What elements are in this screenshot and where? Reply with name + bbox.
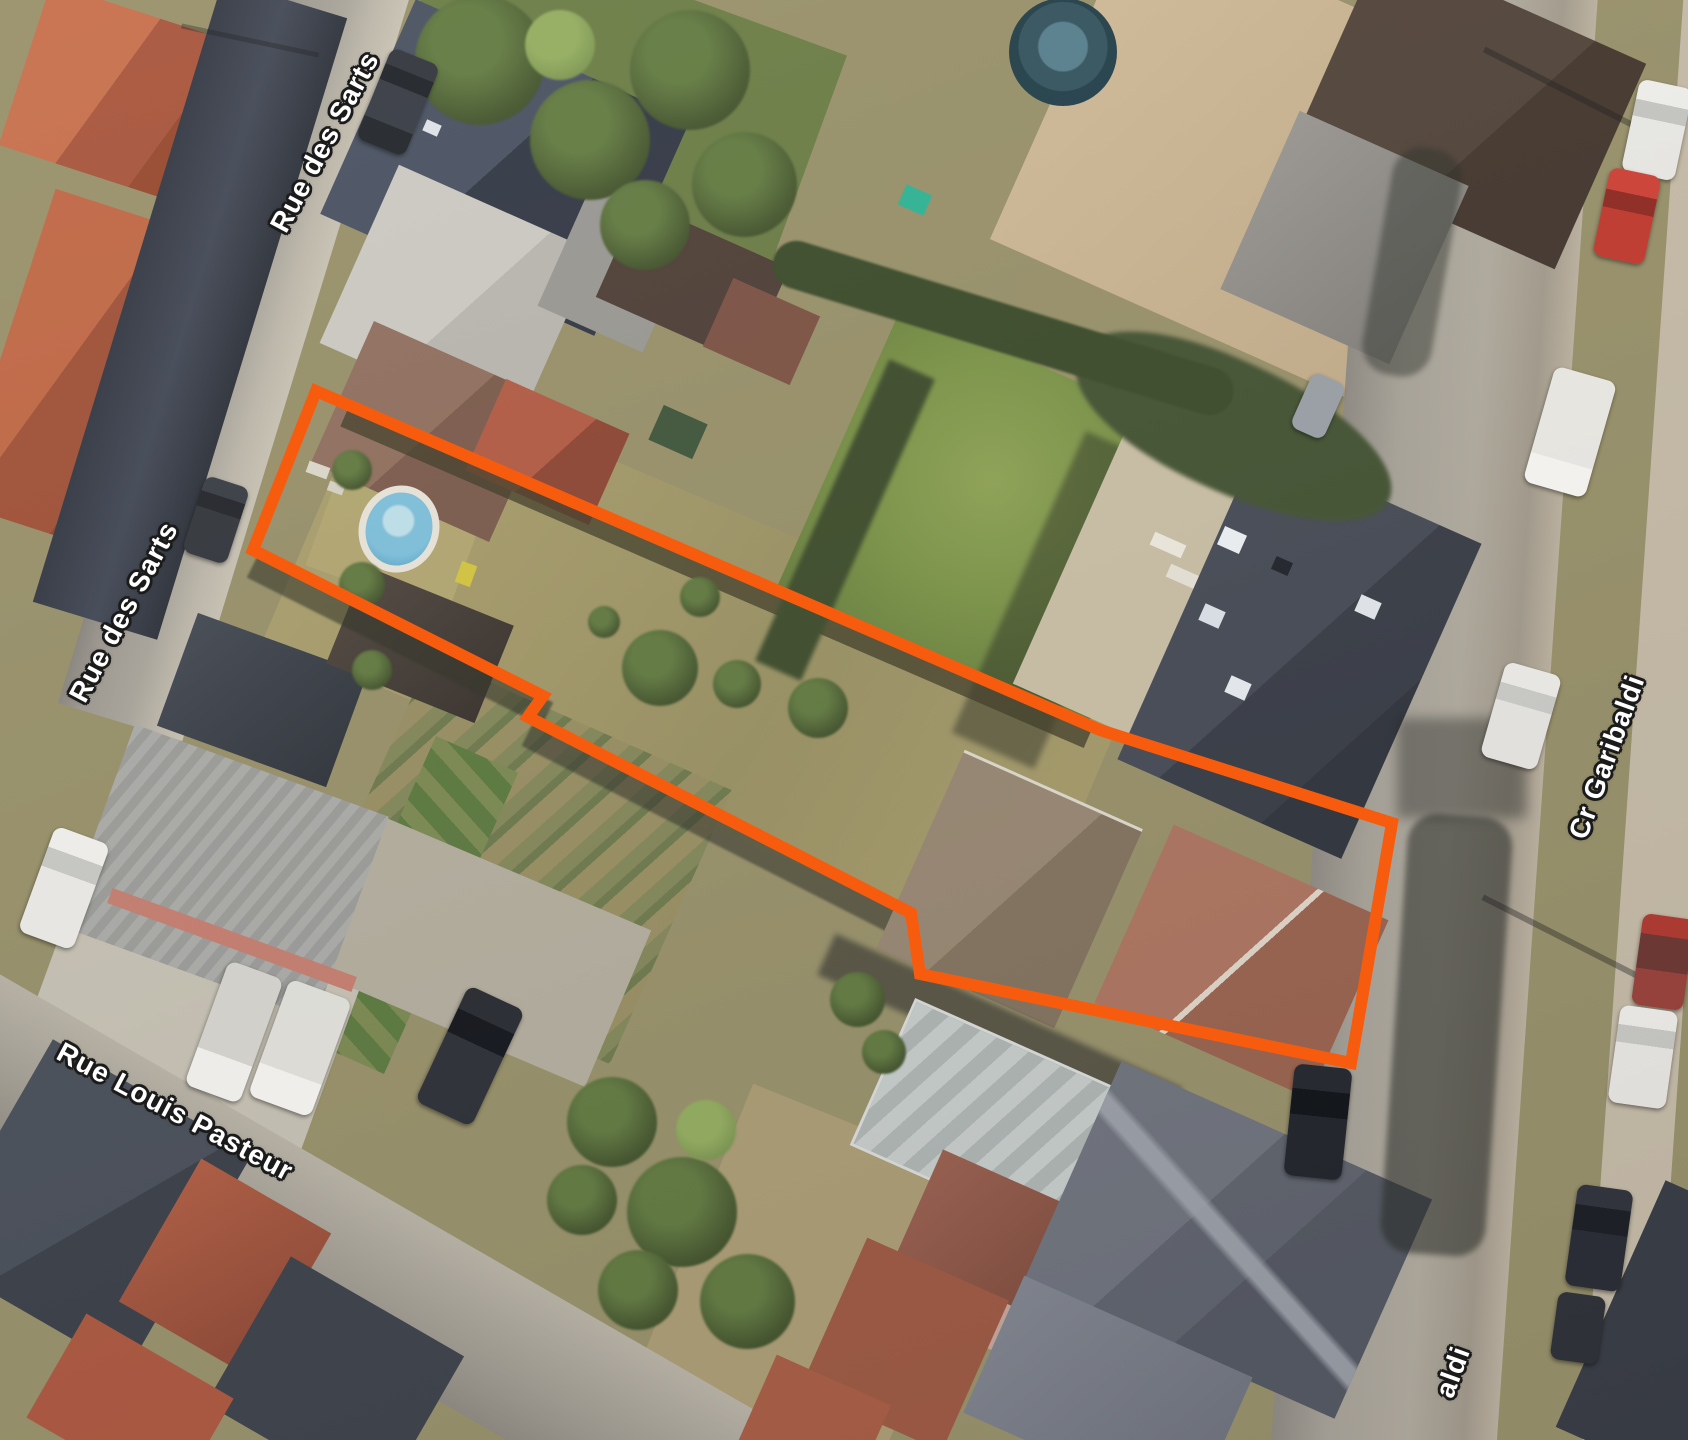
bush [332,450,372,490]
shed-green [648,405,707,459]
tree [713,660,761,708]
tree [622,630,698,706]
tree [788,678,848,738]
tree [415,0,545,125]
bush [830,972,885,1027]
tree [588,606,620,638]
tree [598,1250,678,1330]
car-black-on-road [1283,1063,1352,1180]
tree [547,1165,617,1235]
tree [600,180,690,270]
tree [680,577,720,617]
tree [692,132,797,237]
satellite-map[interactable]: Rue des Sarts Rue des Sarts Rue Louis Pa… [0,0,1688,1440]
bush [862,1030,906,1074]
bush [352,650,392,690]
tree-light [676,1100,736,1160]
tent-teal [898,184,933,215]
car-red [1592,167,1662,266]
trampoline-pool-round [1009,0,1117,106]
tree-light [525,10,595,80]
tree [630,10,750,130]
tree [700,1254,795,1349]
car-dark-small [1550,1291,1607,1365]
tree [567,1077,657,1167]
